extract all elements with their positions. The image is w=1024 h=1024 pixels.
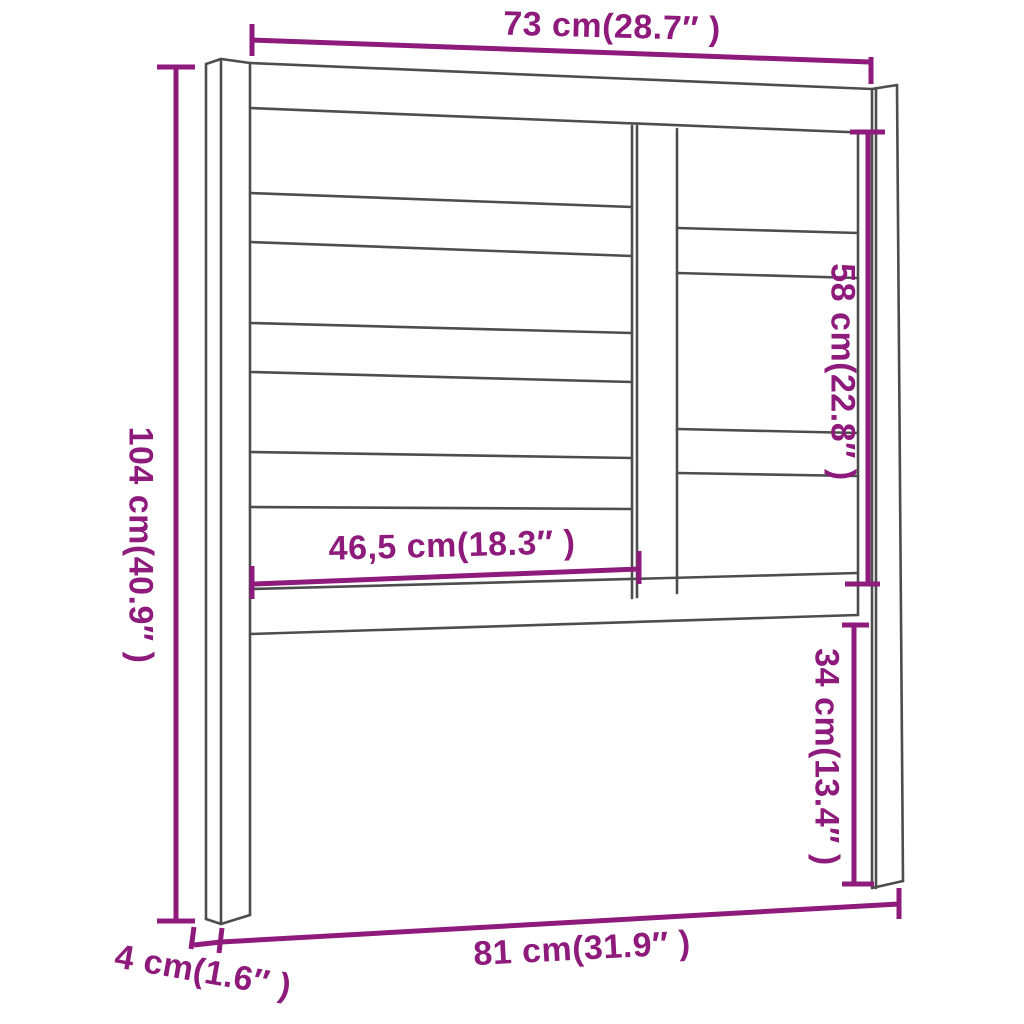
headboard-outline xyxy=(206,59,903,924)
dimension-label-top-width: 73 cm(28.7″ ) xyxy=(503,5,721,50)
dimension-left-height-104cm xyxy=(157,67,195,921)
dimension-leg-lower-height-34cm xyxy=(842,625,874,884)
left-leg xyxy=(206,59,250,924)
dimension-label-left-height: 104 cm(40.9″ ) xyxy=(121,427,160,664)
right-leg xyxy=(872,85,903,888)
diagram-canvas: 73 cm(28.7″ ) 104 cm(40.9″ ) 58 cm(22.8″… xyxy=(0,0,1024,1024)
dimension-label-right-inner-height: 58 cm(22.8″ ) xyxy=(823,263,862,480)
top-rail xyxy=(250,63,872,133)
dimension-leg-depth-4cm xyxy=(191,927,222,953)
middle-divider xyxy=(632,126,677,598)
dimension-lines xyxy=(157,24,899,953)
dimension-label-leg-lower-height: 34 cm(13.4″ ) xyxy=(807,648,846,865)
dimension-label-slat-width: 46,5 cm(18.3″ ) xyxy=(328,523,576,568)
left-slats xyxy=(250,193,632,509)
